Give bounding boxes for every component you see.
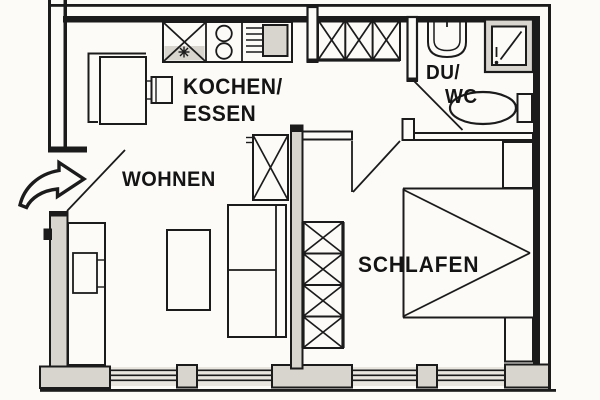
pier-window-post-right — [417, 365, 437, 388]
pier-bottom-right-corner — [505, 365, 549, 388]
shower-icon — [485, 20, 533, 73]
room-label-du: DU/ — [426, 62, 460, 85]
nightstand-top — [503, 142, 533, 188]
faucet-icon — [179, 47, 190, 58]
floor-plan-drawing — [0, 0, 600, 400]
left-wall-outer-line — [48, 0, 51, 152]
pier-window-post-left — [177, 365, 197, 388]
wall-hall-bath-cap — [407, 78, 419, 83]
sideboard — [68, 223, 105, 365]
dining-table — [100, 57, 146, 124]
right-wall-outer-line — [548, 4, 551, 392]
wall-bath-bedroom — [414, 133, 533, 140]
dining-chair — [145, 77, 172, 103]
bedroom-door-swing — [353, 141, 400, 192]
wall-kitchen-hall — [308, 7, 318, 61]
kitchen-counter — [163, 22, 292, 62]
room-label-kochen-line2: ESSEN — [183, 100, 283, 127]
shelf-icon — [246, 135, 288, 200]
bottom-wall-outer-line — [40, 389, 556, 392]
room-label-kochen-essen: KOCHEN/ ESSEN — [183, 73, 283, 127]
sofa — [228, 205, 286, 337]
nightstand-bottom — [505, 318, 533, 362]
appliance-icon — [246, 25, 288, 56]
door-jamb-bath-bedroom — [403, 119, 415, 140]
cooktop-icon — [216, 26, 232, 59]
entrance-top-jamb — [48, 147, 87, 153]
entrance-bottom-jamb — [49, 211, 68, 217]
dining-area — [89, 54, 173, 125]
top-wall-outer-line — [48, 4, 551, 7]
hall-wardrobe-icon — [318, 20, 400, 60]
wall-living-bedroom-cap — [290, 125, 304, 133]
sink-icon — [164, 23, 205, 61]
floor-plan: KOCHEN/ ESSEN WOHNEN DU/ WC SCHLAFEN — [0, 0, 600, 400]
washbasin-icon — [428, 17, 466, 57]
room-label-wohnen: WOHNEN — [122, 168, 216, 192]
room-label-kochen-line1: KOCHEN/ — [183, 73, 283, 100]
exterior-fitting — [44, 229, 53, 241]
left-wall-inner-line — [64, 0, 68, 147]
room-label-wc: WC — [445, 86, 478, 109]
coffee-table — [167, 230, 210, 310]
bedroom-wardrobe-icon — [303, 222, 343, 348]
pier-bottom-middle — [272, 365, 352, 388]
wall-living-bedroom — [291, 126, 303, 369]
wall-hall-bath — [408, 17, 418, 80]
wall-hall-bedroom — [302, 132, 352, 140]
left-wall-lower — [50, 212, 68, 368]
room-label-schlafen: SCHLAFEN — [358, 252, 479, 278]
corner-bench — [89, 54, 147, 123]
entrance-arrow-icon — [20, 163, 84, 208]
wall-kitchen-hall-cap — [307, 59, 319, 64]
pier-bottom-left-corner — [40, 367, 110, 389]
